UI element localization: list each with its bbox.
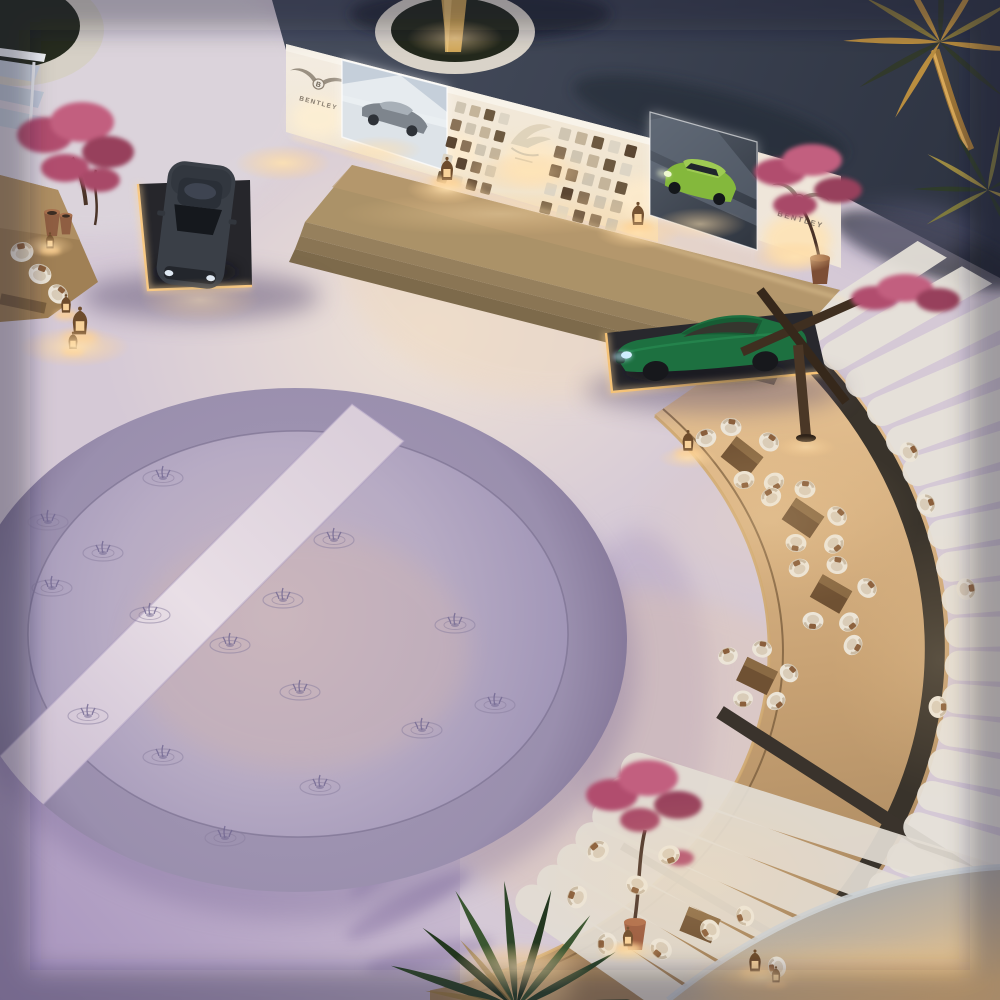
light-glow	[654, 208, 746, 240]
light-glow	[340, 192, 660, 236]
venue-render: B BENTLEY	[0, 0, 1000, 1000]
light-glow	[235, 145, 331, 181]
bentley-event-scene: B BENTLEY	[0, 0, 1000, 1000]
light-glow	[140, 278, 260, 322]
light-glow	[466, 152, 594, 192]
light-glow	[338, 136, 422, 164]
light-glow	[540, 790, 860, 970]
lounge-chair	[733, 690, 753, 707]
light-glow	[20, 327, 130, 367]
light-glow	[753, 241, 837, 273]
